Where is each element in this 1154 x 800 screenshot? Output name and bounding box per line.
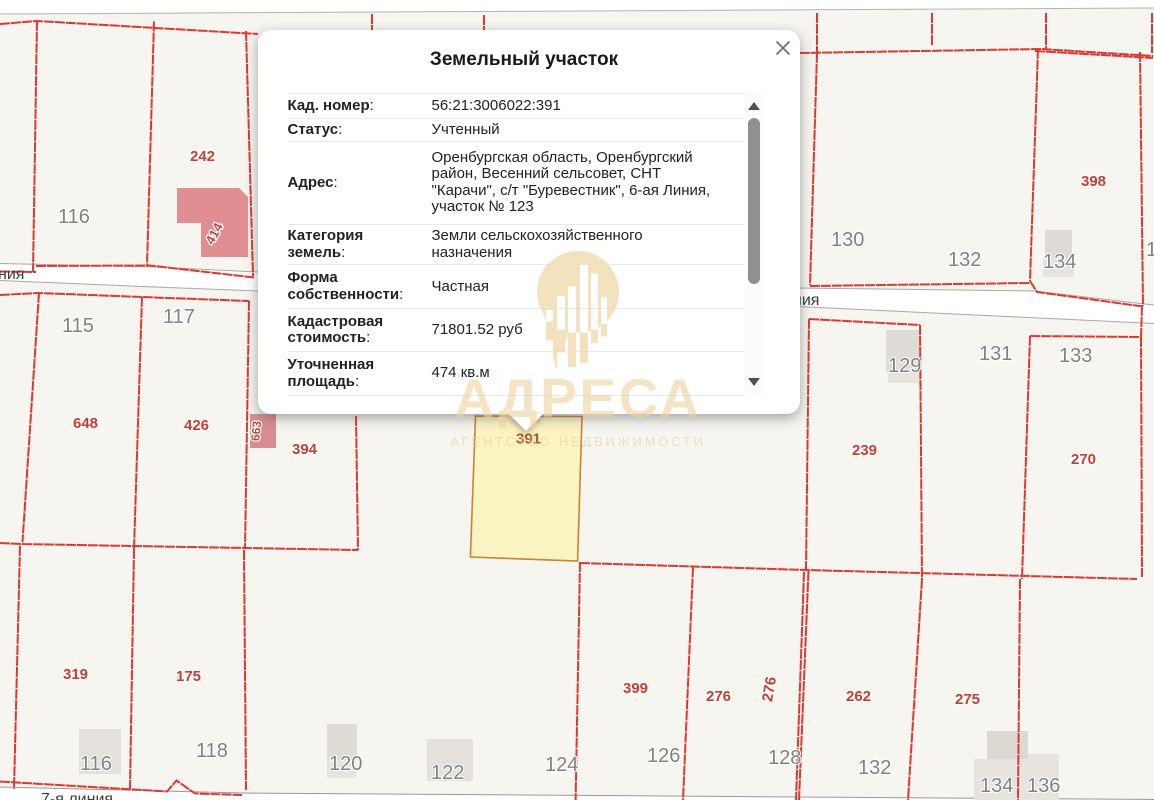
svg-text:663: 663 xyxy=(248,420,264,441)
svg-text:270: 270 xyxy=(1071,451,1096,468)
svg-text:ния: ния xyxy=(0,266,24,283)
svg-text:239: 239 xyxy=(852,442,877,459)
svg-text:116: 116 xyxy=(80,753,112,775)
svg-text:242: 242 xyxy=(190,148,215,165)
svg-text:120: 120 xyxy=(329,753,362,775)
svg-text:13: 13 xyxy=(1146,239,1154,261)
svg-text:118: 118 xyxy=(196,740,228,762)
svg-text:7-я линия: 7-я линия xyxy=(41,791,113,800)
svg-text:132: 132 xyxy=(948,249,981,271)
svg-text:115: 115 xyxy=(62,315,94,337)
svg-text:175: 175 xyxy=(176,668,201,685)
svg-text:122: 122 xyxy=(431,762,464,784)
svg-text:124: 124 xyxy=(545,754,578,776)
svg-text:134: 134 xyxy=(980,775,1013,797)
svg-text:275: 275 xyxy=(955,691,980,708)
svg-text:319: 319 xyxy=(63,666,88,683)
svg-text:129: 129 xyxy=(888,355,921,377)
svg-text:399: 399 xyxy=(623,680,648,697)
svg-text:131: 131 xyxy=(979,343,1012,365)
svg-text:648: 648 xyxy=(73,415,98,432)
svg-text:133: 133 xyxy=(1059,345,1092,367)
svg-text:262: 262 xyxy=(846,688,871,705)
svg-text:130: 130 xyxy=(831,229,864,251)
svg-text:128: 128 xyxy=(768,747,801,769)
svg-text:426: 426 xyxy=(184,417,209,434)
svg-text:276: 276 xyxy=(706,688,731,705)
svg-text:394: 394 xyxy=(292,441,318,458)
svg-text:134: 134 xyxy=(1043,251,1076,273)
svg-text:116: 116 xyxy=(58,206,90,228)
svg-text:391: 391 xyxy=(516,431,541,448)
svg-text:136: 136 xyxy=(1027,775,1060,797)
svg-text:126: 126 xyxy=(647,745,680,767)
svg-text:132: 132 xyxy=(858,757,891,779)
svg-text:117: 117 xyxy=(163,306,195,328)
svg-text:398: 398 xyxy=(1081,173,1106,190)
